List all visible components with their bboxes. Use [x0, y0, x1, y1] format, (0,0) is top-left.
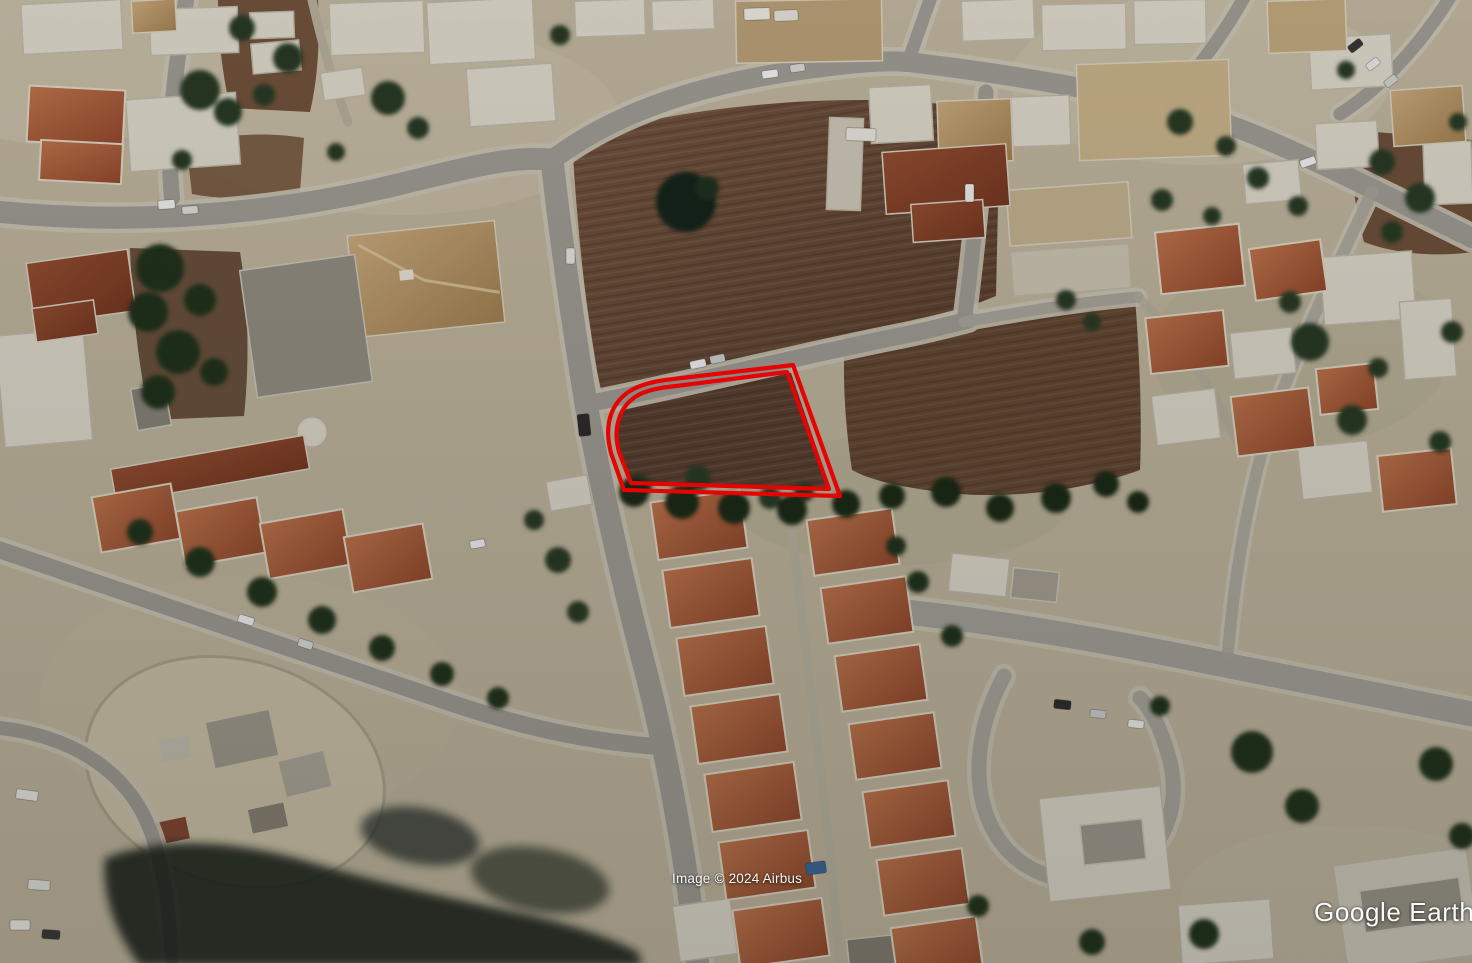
google-earth-viewport[interactable]: Image © 2024 Airbus Google Earth	[0, 0, 1472, 963]
imagery-attribution: Image © 2024 Airbus	[672, 871, 802, 886]
bottom-shading	[0, 0, 1472, 963]
satellite-imagery	[0, 0, 1472, 963]
google-earth-logo: Google Earth	[1314, 897, 1472, 928]
